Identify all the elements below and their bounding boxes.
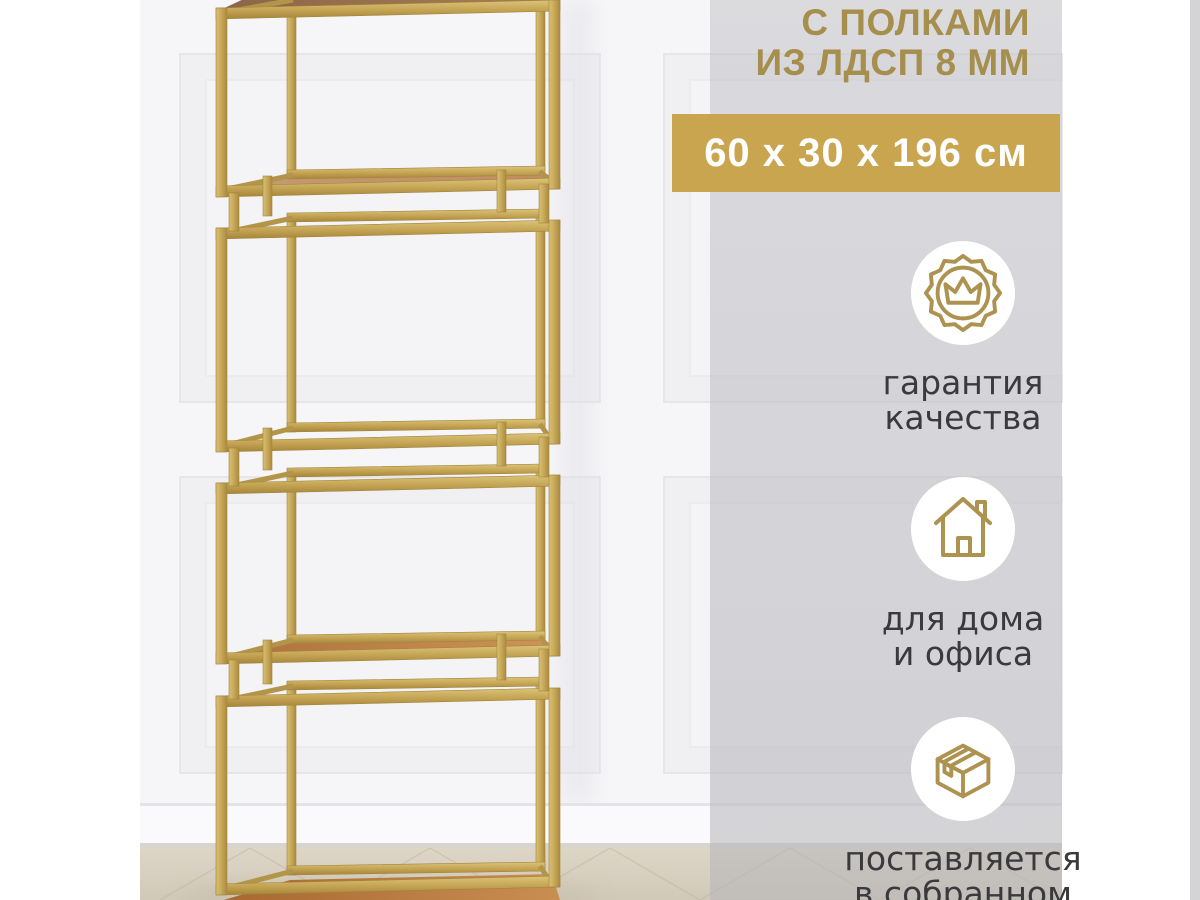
feature-assembled: поставляется в собранном <box>803 717 1123 900</box>
feature-home-office-line2: и офиса <box>803 636 1123 671</box>
material-note-line2: ИЗ ЛДСП 8 ММ <box>756 43 1030 83</box>
feature-home-office-line1: для дома <box>803 601 1123 636</box>
material-note-line1: С ПОЛКАМИ <box>756 3 1030 43</box>
feature-quality-line1: гарантия <box>803 365 1123 400</box>
feature-home-office: для дома и офиса <box>803 477 1123 671</box>
product-card-image: С ПОЛКАМИ ИЗ ЛДСП 8 ММ 60 x 30 x 196 см … <box>0 0 1200 900</box>
right-edge-strip <box>1190 0 1200 900</box>
dimensions-badge: 60 x 30 x 196 см <box>672 114 1060 192</box>
dimensions-text: 60 x 30 x 196 см <box>704 131 1028 176</box>
house-icon <box>911 477 1015 581</box>
feature-quality: гарантия качества <box>803 241 1123 435</box>
material-note: С ПОЛКАМИ ИЗ ЛДСП 8 ММ <box>756 3 1030 83</box>
feature-assembled-line1: поставляется <box>803 841 1123 876</box>
feature-assembled-line2: в собранном <box>803 876 1123 900</box>
feature-quality-line2: качества <box>803 400 1123 435</box>
quality-seal-crown-icon <box>911 241 1015 345</box>
package-box-icon <box>911 717 1015 821</box>
